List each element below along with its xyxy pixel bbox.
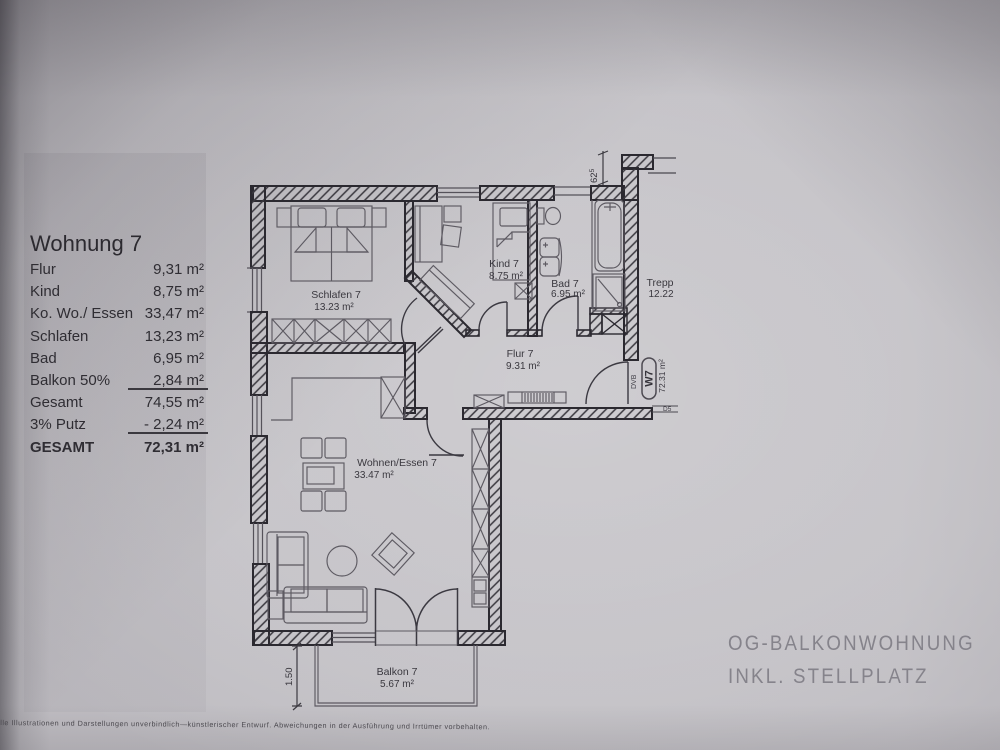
svg-text:9.31 m²: 9.31 m² — [506, 361, 541, 372]
svg-text:Trepp: Trepp — [646, 277, 673, 289]
svg-text:Flur 7: Flur 7 — [507, 348, 534, 360]
svg-text:6.95 m²: 6.95 m² — [551, 289, 586, 300]
svg-text:Wohnen/Essen 7: Wohnen/Essen 7 — [357, 457, 437, 469]
svg-text:72.31 m²: 72.31 m² — [657, 359, 667, 393]
svg-text:Balkon 7: Balkon 7 — [377, 666, 418, 678]
svg-text:Kind 7: Kind 7 — [489, 258, 519, 270]
svg-text:W7: W7 — [644, 370, 656, 387]
svg-text:8.75 m²: 8.75 m² — [489, 271, 524, 282]
svg-text:Schlafen 7: Schlafen 7 — [311, 289, 361, 301]
svg-text:1.50: 1.50 — [284, 668, 295, 687]
svg-text:625: 625 — [589, 168, 600, 183]
svg-text:5.67 m²: 5.67 m² — [380, 679, 415, 690]
svg-text:13.23 m²: 13.23 m² — [314, 302, 354, 313]
svg-text:12.22: 12.22 — [648, 289, 673, 300]
svg-text:33.47 m²: 33.47 m² — [354, 470, 394, 481]
svg-text:DVB: DVB — [631, 374, 638, 389]
svg-text:D5: D5 — [663, 406, 672, 413]
